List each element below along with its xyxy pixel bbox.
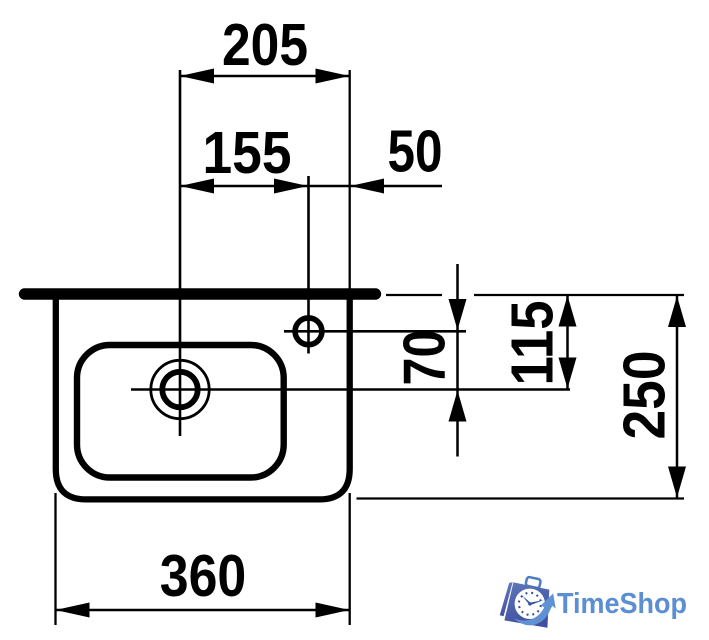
svg-text:115: 115 bbox=[500, 301, 566, 386]
svg-text:TimeShop: TimeShop bbox=[557, 588, 687, 620]
svg-text:70: 70 bbox=[392, 330, 458, 386]
svg-text:250: 250 bbox=[612, 351, 678, 440]
svg-text:205: 205 bbox=[222, 12, 308, 78]
svg-text:360: 360 bbox=[160, 543, 247, 609]
svg-text:155: 155 bbox=[203, 120, 292, 186]
svg-text:50: 50 bbox=[388, 119, 443, 185]
